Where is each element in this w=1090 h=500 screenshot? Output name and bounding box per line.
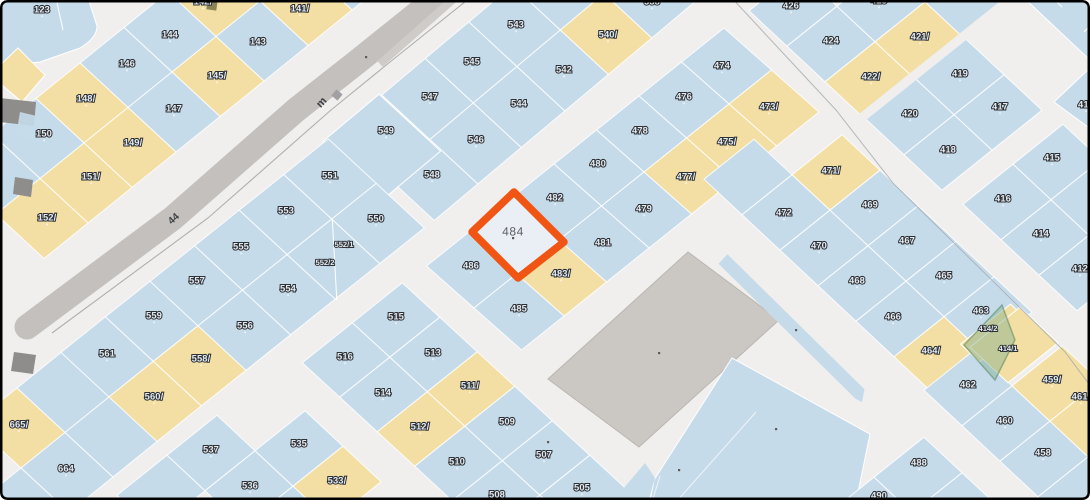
svg-text:486: 486 <box>463 259 479 270</box>
svg-text:557: 557 <box>189 274 205 285</box>
svg-text:533/: 533/ <box>328 474 347 485</box>
svg-text:485: 485 <box>511 302 527 313</box>
svg-text:459/: 459/ <box>1043 373 1062 384</box>
svg-text:558/: 558/ <box>192 352 211 363</box>
svg-text:420: 420 <box>902 107 918 118</box>
svg-text:537: 537 <box>203 443 219 454</box>
svg-text:424: 424 <box>823 34 840 45</box>
svg-text:471/: 471/ <box>822 164 841 175</box>
svg-text:464/: 464/ <box>922 344 941 355</box>
svg-text:476: 476 <box>676 90 692 101</box>
svg-text:543: 543 <box>508 18 524 29</box>
svg-text:412: 412 <box>1072 262 1088 273</box>
svg-text:467: 467 <box>899 234 915 245</box>
svg-text:488: 488 <box>911 456 927 467</box>
svg-text:419: 419 <box>952 67 968 78</box>
svg-text:505: 505 <box>574 481 590 492</box>
svg-text:546: 546 <box>468 133 484 144</box>
svg-text:144: 144 <box>162 28 179 39</box>
svg-text:123: 123 <box>34 3 50 14</box>
svg-text:550: 550 <box>368 212 384 223</box>
svg-text:143: 143 <box>250 35 266 46</box>
svg-text:478: 478 <box>632 124 648 135</box>
svg-text:473/: 473/ <box>760 100 779 111</box>
svg-text:415: 415 <box>1044 151 1060 162</box>
svg-text:150: 150 <box>36 127 52 138</box>
svg-text:474: 474 <box>714 59 731 70</box>
svg-text:477/: 477/ <box>677 170 696 181</box>
svg-text:465: 465 <box>936 269 952 280</box>
svg-text:536: 536 <box>242 479 258 490</box>
svg-text:147: 147 <box>166 102 182 113</box>
svg-text:556: 556 <box>237 319 253 330</box>
svg-text:514: 514 <box>375 386 392 397</box>
svg-text:540/: 540/ <box>599 28 618 39</box>
svg-text:416: 416 <box>995 192 1011 203</box>
svg-text:551: 551 <box>322 169 338 180</box>
svg-text:535: 535 <box>291 437 307 448</box>
svg-text:460: 460 <box>997 414 1013 425</box>
svg-text:547: 547 <box>422 90 438 101</box>
svg-text:414: 414 <box>1033 227 1050 238</box>
svg-text:552/1: 552/1 <box>334 240 354 249</box>
svg-text:665/: 665/ <box>10 418 29 429</box>
svg-text:484: 484 <box>502 225 524 239</box>
svg-text:461/: 461/ <box>1072 390 1090 401</box>
svg-text:141/: 141/ <box>291 2 310 13</box>
svg-text:151/: 151/ <box>82 170 101 181</box>
svg-text:466: 466 <box>885 310 901 321</box>
svg-text:468: 468 <box>849 274 865 285</box>
svg-text:512/: 512/ <box>411 420 430 431</box>
svg-text:511/: 511/ <box>461 379 479 390</box>
svg-text:516: 516 <box>337 350 353 361</box>
svg-text:148/: 148/ <box>77 92 96 103</box>
svg-text:510: 510 <box>449 455 465 466</box>
svg-text:548: 548 <box>424 168 440 179</box>
svg-text:554: 554 <box>280 282 297 293</box>
svg-text:463: 463 <box>973 304 989 315</box>
svg-text:469: 469 <box>862 198 878 209</box>
svg-text:515: 515 <box>388 310 404 321</box>
svg-text:475/: 475/ <box>718 135 737 146</box>
svg-text:152/: 152/ <box>38 211 57 222</box>
svg-text:414/1: 414/1 <box>998 344 1018 353</box>
svg-text:472: 472 <box>776 206 792 217</box>
svg-text:509: 509 <box>499 415 515 426</box>
svg-text:561: 561 <box>99 347 115 358</box>
svg-text:555: 555 <box>233 240 249 251</box>
svg-text:482: 482 <box>547 191 563 202</box>
svg-text:418: 418 <box>940 143 956 154</box>
svg-text:559: 559 <box>146 309 162 320</box>
svg-text:664: 664 <box>58 462 75 473</box>
svg-text:417: 417 <box>992 100 1008 111</box>
svg-text:507: 507 <box>536 448 552 459</box>
svg-text:422/: 422/ <box>862 70 881 81</box>
svg-text:549: 549 <box>378 124 394 135</box>
svg-text:458: 458 <box>1035 446 1051 457</box>
svg-text:481: 481 <box>595 236 611 247</box>
svg-text:414/2: 414/2 <box>978 324 997 333</box>
svg-text:545: 545 <box>464 55 480 66</box>
svg-text:149/: 149/ <box>124 136 143 147</box>
svg-text:470: 470 <box>811 239 827 250</box>
svg-text:479: 479 <box>636 202 652 213</box>
svg-text:480: 480 <box>590 157 606 168</box>
svg-text:560/: 560/ <box>145 390 164 401</box>
svg-text:513: 513 <box>425 346 441 357</box>
svg-text:462: 462 <box>960 378 976 389</box>
svg-text:421/: 421/ <box>911 30 930 41</box>
svg-text:483/: 483/ <box>552 267 571 278</box>
svg-text:553: 553 <box>278 204 294 215</box>
svg-text:146: 146 <box>119 57 135 68</box>
svg-text:542: 542 <box>556 63 572 74</box>
svg-text:552/2: 552/2 <box>315 258 334 267</box>
svg-text:544: 544 <box>511 97 528 108</box>
svg-text:145/: 145/ <box>208 69 227 80</box>
